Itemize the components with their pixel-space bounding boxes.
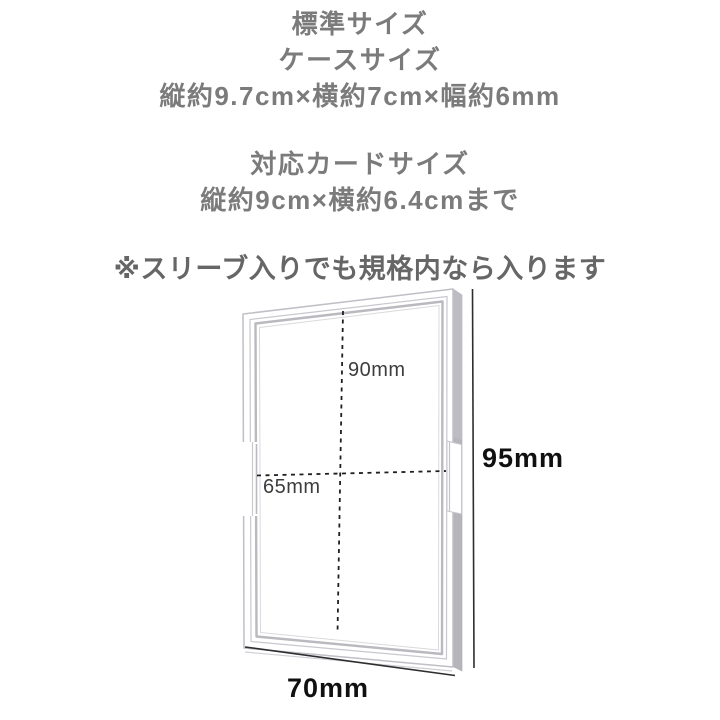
product-size-spec-image: 標準サイズ ケースサイズ 縦約9.7cm×横約7cm×幅約6mm 対応カードサイ… bbox=[0, 0, 720, 720]
inner-height-label: 90mm bbox=[348, 359, 406, 382]
outer-width-label: 70mm bbox=[287, 673, 369, 704]
left-notch bbox=[242, 442, 258, 516]
outer-height-label: 95mm bbox=[482, 443, 564, 474]
inner-width-label: 65mm bbox=[263, 476, 321, 499]
height-dimension-line bbox=[473, 289, 475, 668]
case-side-face-highlight bbox=[453, 289, 462, 440]
